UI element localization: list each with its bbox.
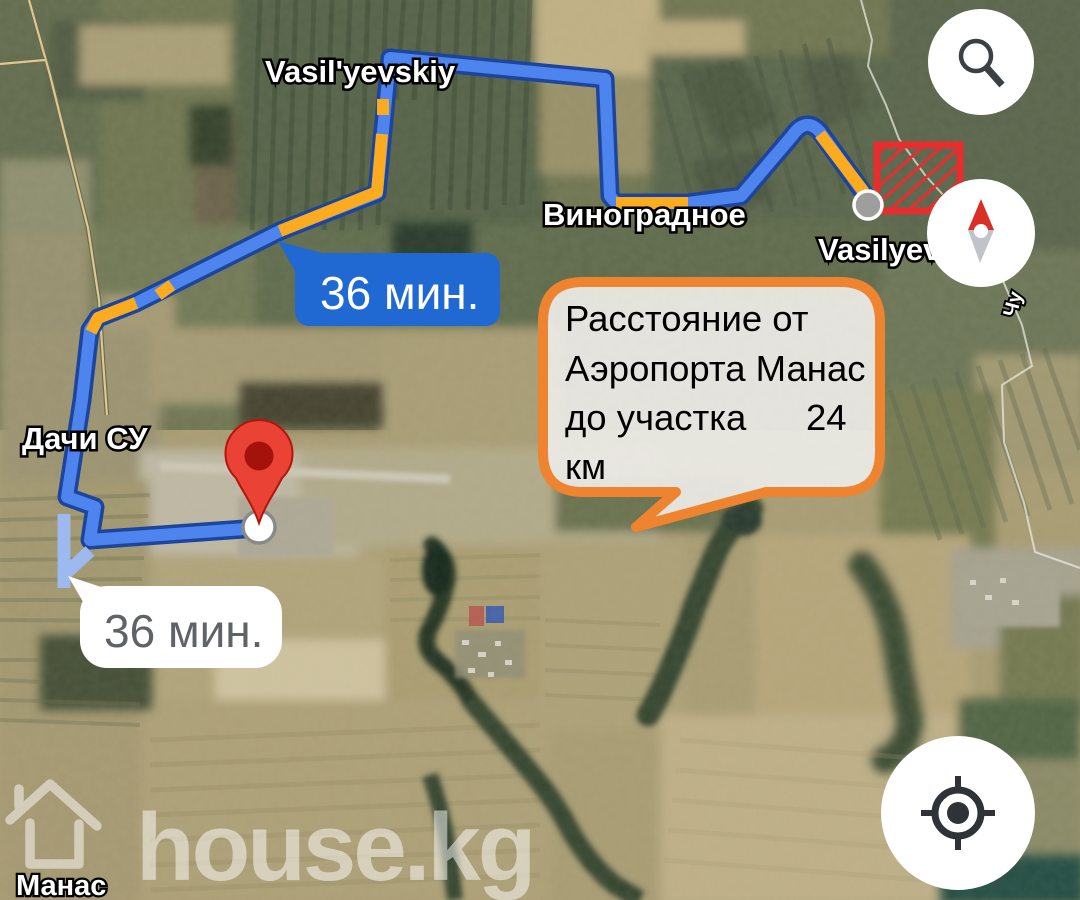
svg-text:Дачи СУ: Дачи СУ <box>22 421 148 456</box>
svg-text:Vasil'yevskiy: Vasil'yevskiy <box>265 54 456 89</box>
svg-text:36 мин.: 36 мин. <box>320 267 479 319</box>
svg-text:house.kg: house.kg <box>136 794 533 900</box>
svg-text:Vasilyev: Vasilyev <box>818 232 941 267</box>
svg-text:36 мин.: 36 мин. <box>104 605 263 657</box>
svg-text:Расстояние от: Расстояние от <box>565 298 809 339</box>
svg-text:Виноградное: Виноградное <box>543 197 746 232</box>
svg-text:Манас: Манас <box>16 870 106 900</box>
svg-text:км: км <box>565 446 606 487</box>
svg-text:до участка: до участка <box>565 397 747 438</box>
svg-text:24: 24 <box>806 397 847 438</box>
svg-text:Аэропорта Манас: Аэропорта Манас <box>565 348 866 389</box>
